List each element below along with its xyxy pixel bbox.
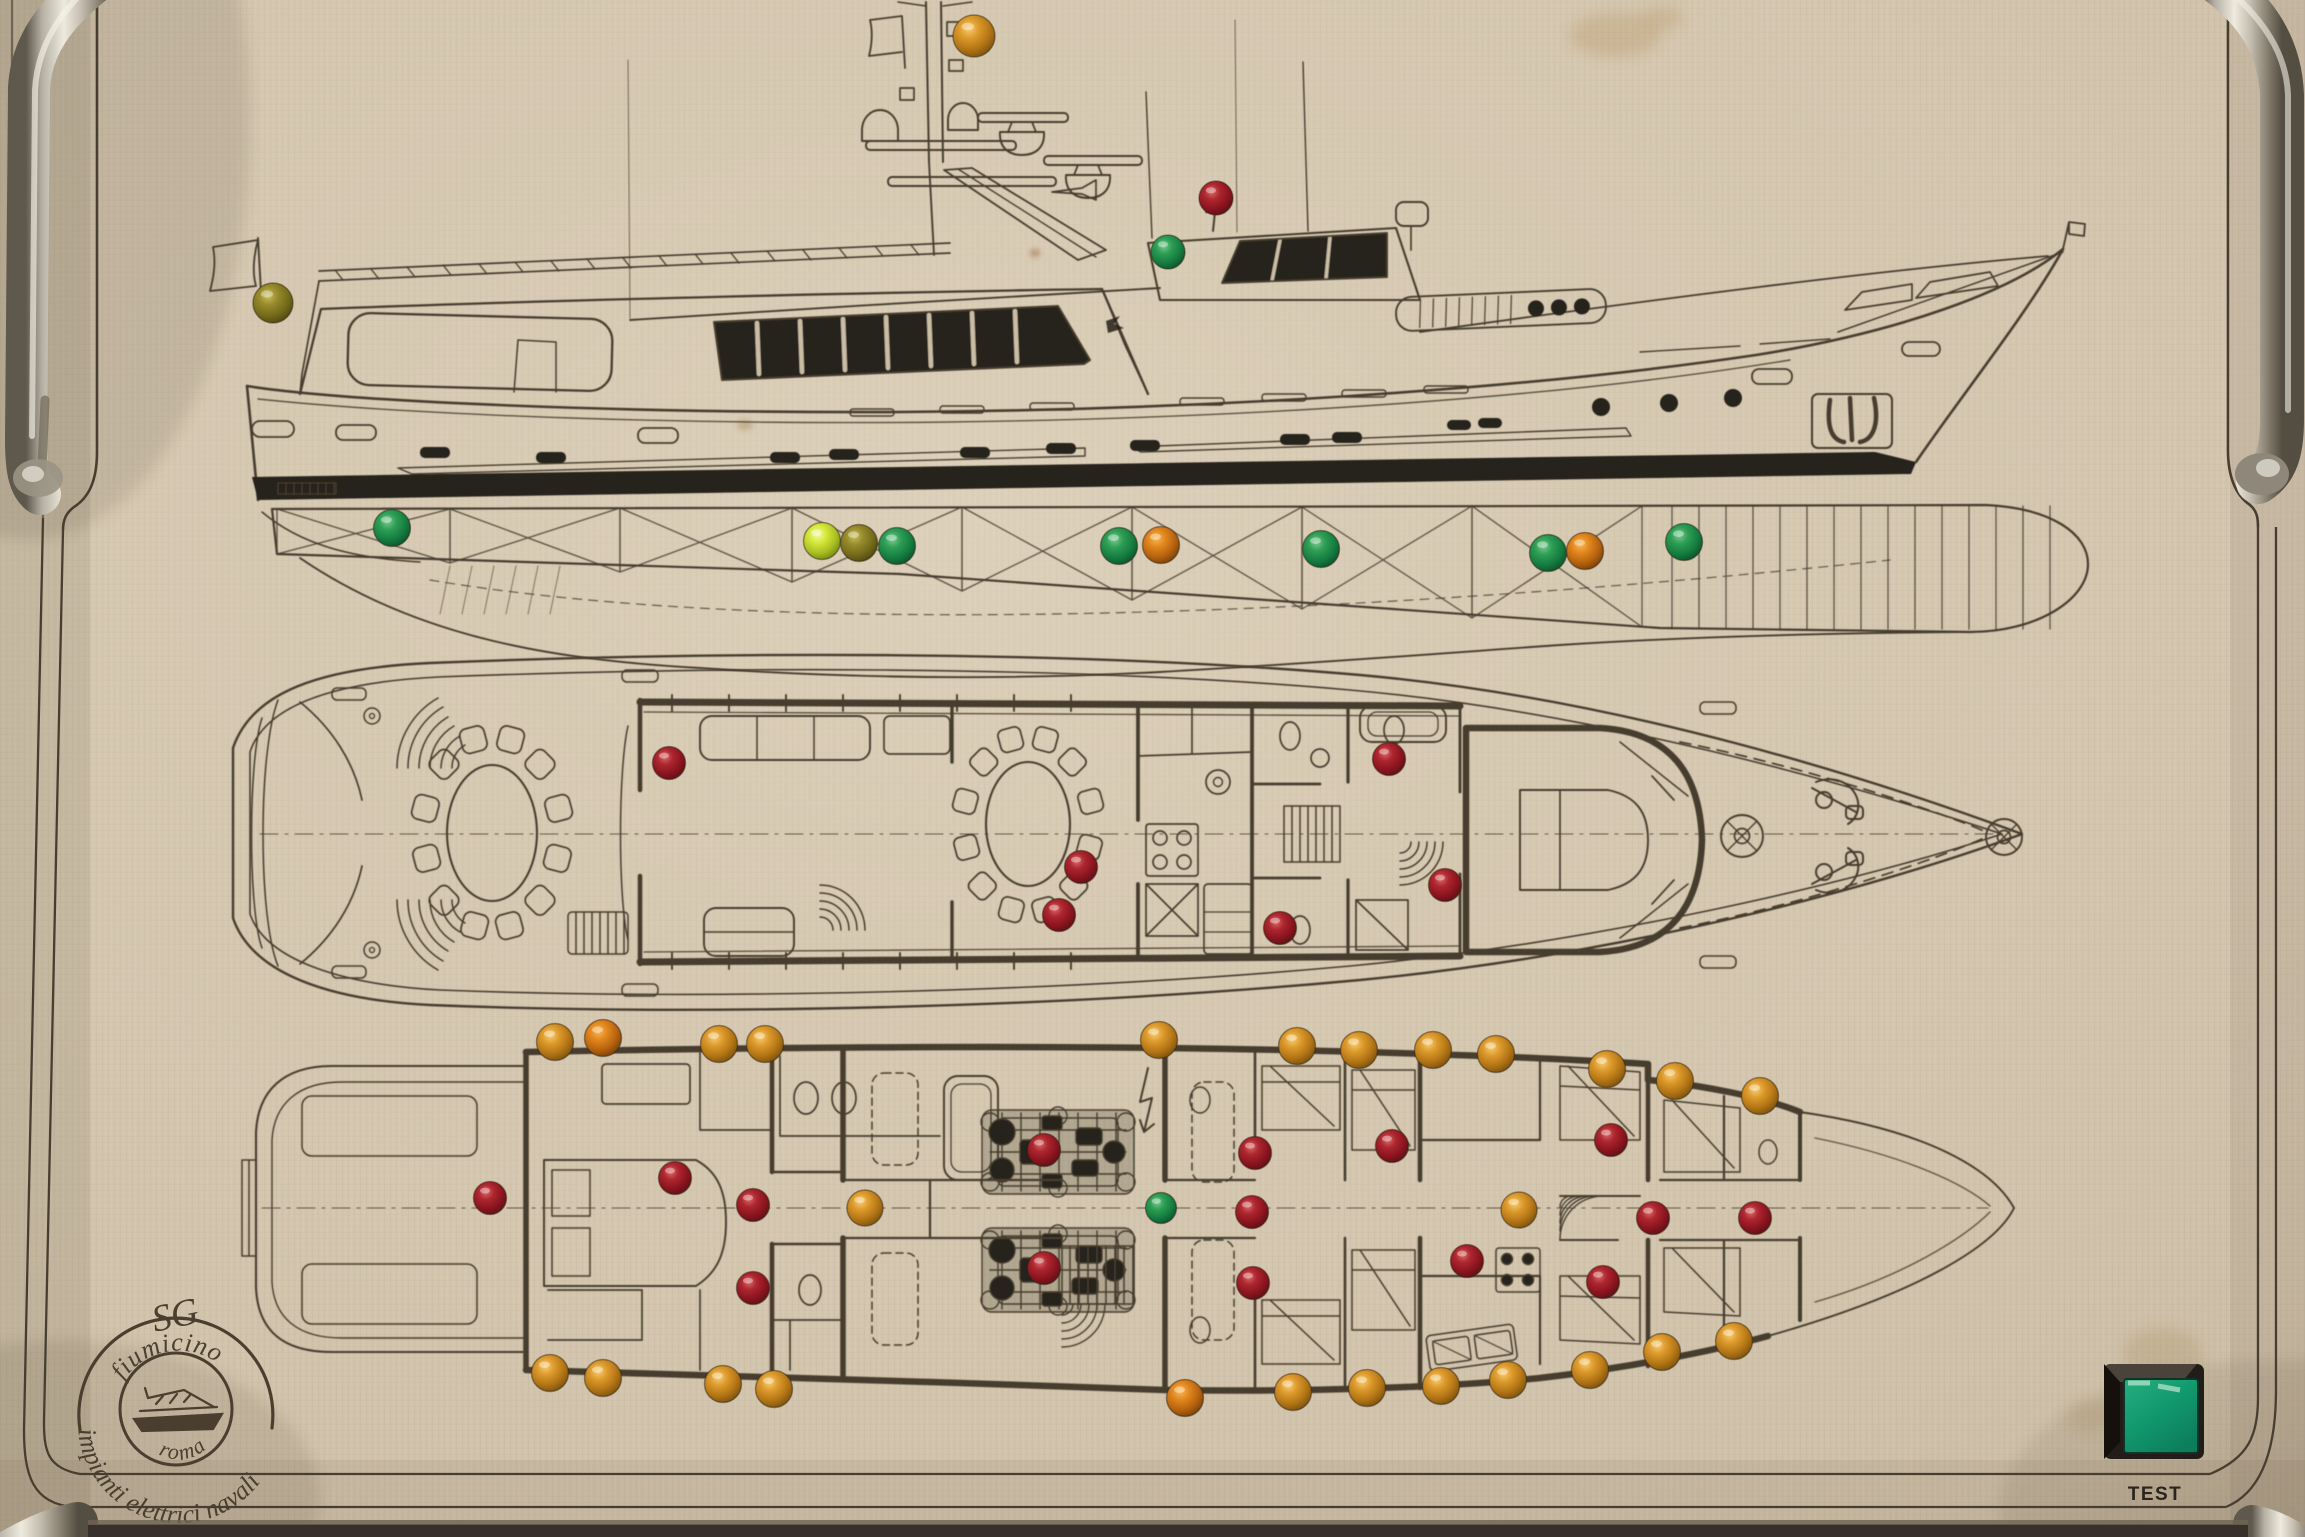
svg-text:TEST: TEST [2128, 1484, 2183, 1505]
